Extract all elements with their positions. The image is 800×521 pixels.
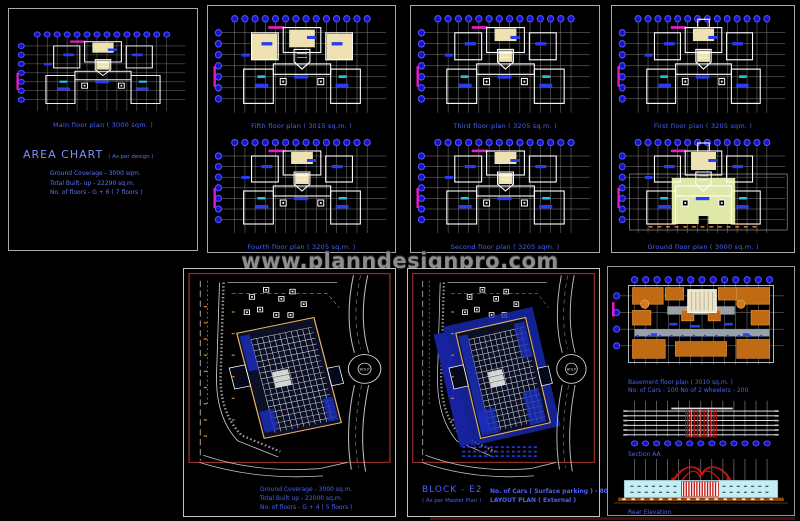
basement-plan-svg	[610, 273, 792, 377]
fourth-floor-plan-drawing	[212, 136, 392, 240]
area-chart-block: AREA CHART ( As per design ) Ground Cove…	[23, 143, 154, 198]
site-left-builtup: Total Built up - 22000 sq.m.	[260, 494, 352, 503]
third-floor-caption: Third floor plan ( 3205 sq.m. )	[411, 122, 599, 130]
panel-first-ground-floor: First floor plan ( 3205 sqm. ) Ground fl…	[611, 5, 795, 253]
area-chart-suffix: ( As per design )	[108, 154, 153, 160]
block-e2-layout-title: LAYOUT PLAN ( External )	[490, 496, 608, 505]
elevation-caption: Rear Elevation	[628, 509, 672, 516]
floor-plan-svg	[415, 12, 596, 120]
basement-caption: Basement floor plan ( 3010 sq.m. )	[628, 379, 733, 386]
section-caption: Section AA	[628, 451, 661, 458]
rear-elevation-drawing	[610, 459, 792, 507]
block-e2-parking-info: No. of Cars ( Surface parking ) - 80	[490, 487, 608, 496]
fifth-floor-plan-drawing	[212, 12, 392, 120]
first-floor-caption: First floor plan ( 3205 sqm. )	[612, 122, 794, 130]
floor-plan-svg	[616, 136, 791, 240]
section-aa-drawing	[610, 399, 792, 449]
block-e2-info-group: No. of Cars ( Surface parking ) - 80 LAY…	[490, 487, 608, 505]
fifth-floor-caption: Fifth floor plan ( 3015 sq.m. )	[208, 122, 395, 130]
floor-plan-svg	[212, 136, 392, 240]
basement-plan-drawing	[610, 273, 792, 377]
site-left-captions: Ground Coverage - 3000 sq.m. Total Built…	[260, 485, 352, 512]
panel-main-floor-plan: Main floor plan ( 3000 sqm. ) AREA CHART…	[8, 8, 198, 251]
floor-plan-svg	[212, 12, 392, 120]
first-floor-plan-drawing	[616, 12, 791, 120]
third-floor-plan-drawing	[415, 12, 596, 120]
second-floor-plan-drawing	[415, 136, 596, 240]
area-chart-lines: Ground Coverage - 3000 sqm. Total Built-…	[50, 169, 154, 198]
area-chart-title: AREA CHART	[23, 148, 103, 161]
site-left-coverage: Ground Coverage - 3000 sq.m.	[260, 485, 352, 494]
panel-fifth-fourth-floor: Fifth floor plan ( 3015 sq.m. ) Fourth f…	[207, 5, 396, 253]
main-floor-plan-caption: Main floor plan ( 3000 sqm. )	[9, 121, 197, 129]
area-chart-line-builtup: Total Built- up - 22290 sq.m.	[50, 179, 154, 189]
area-chart-line-floors: No. of floors - G + 6 ( 7 floors )	[50, 188, 154, 198]
svg-text:BOLP: BOLP	[360, 368, 371, 372]
svg-text:BOLP: BOLP	[567, 368, 576, 372]
panel-third-second-floor: Third floor plan ( 3205 sq.m. ) Second f…	[410, 5, 600, 253]
panel-site-plan-left: BOLP Ground Coverage - 3000 sq.m. Total …	[183, 268, 396, 517]
panel-site-plan-block-e2: BOLP BLOCK - E2 ( As per Master Plan ) N…	[407, 268, 600, 517]
block-e2-label: BLOCK - E2	[422, 486, 483, 495]
panel-details: Basement floor plan ( 3010 sq.m. ) No. o…	[607, 266, 795, 516]
rear-elevation-svg	[610, 459, 792, 507]
bottom-red-strip	[430, 517, 795, 520]
floor-plan-svg	[15, 29, 191, 117]
site-plan-svg: BOLP	[409, 270, 598, 484]
section-aa-svg	[610, 399, 792, 449]
basement-parking-info: No. of Cars - 100 No of 2 wheelers - 200	[628, 387, 748, 394]
floor-plan-svg	[616, 12, 791, 120]
site-plan-svg: BOLP	[185, 270, 394, 484]
site-plan-left-drawing: BOLP	[185, 270, 394, 484]
site-plan-block-e2-drawing: BOLP	[409, 270, 598, 484]
main-floor-plan-drawing	[15, 29, 191, 117]
site-left-floors: No. of floors - G + 4 ( 5 floors )	[260, 503, 352, 512]
area-chart-line-coverage: Ground Coverage - 3000 sqm.	[50, 169, 154, 179]
block-e2-label-group: BLOCK - E2 ( As per Master Plan )	[422, 486, 483, 506]
cad-sheet-collage: Main floor plan ( 3000 sqm. ) AREA CHART…	[0, 0, 800, 521]
block-e2-sublabel: ( As per Master Plan )	[422, 497, 483, 506]
floor-plan-svg	[415, 136, 596, 240]
ground-floor-plan-drawing	[616, 136, 791, 240]
